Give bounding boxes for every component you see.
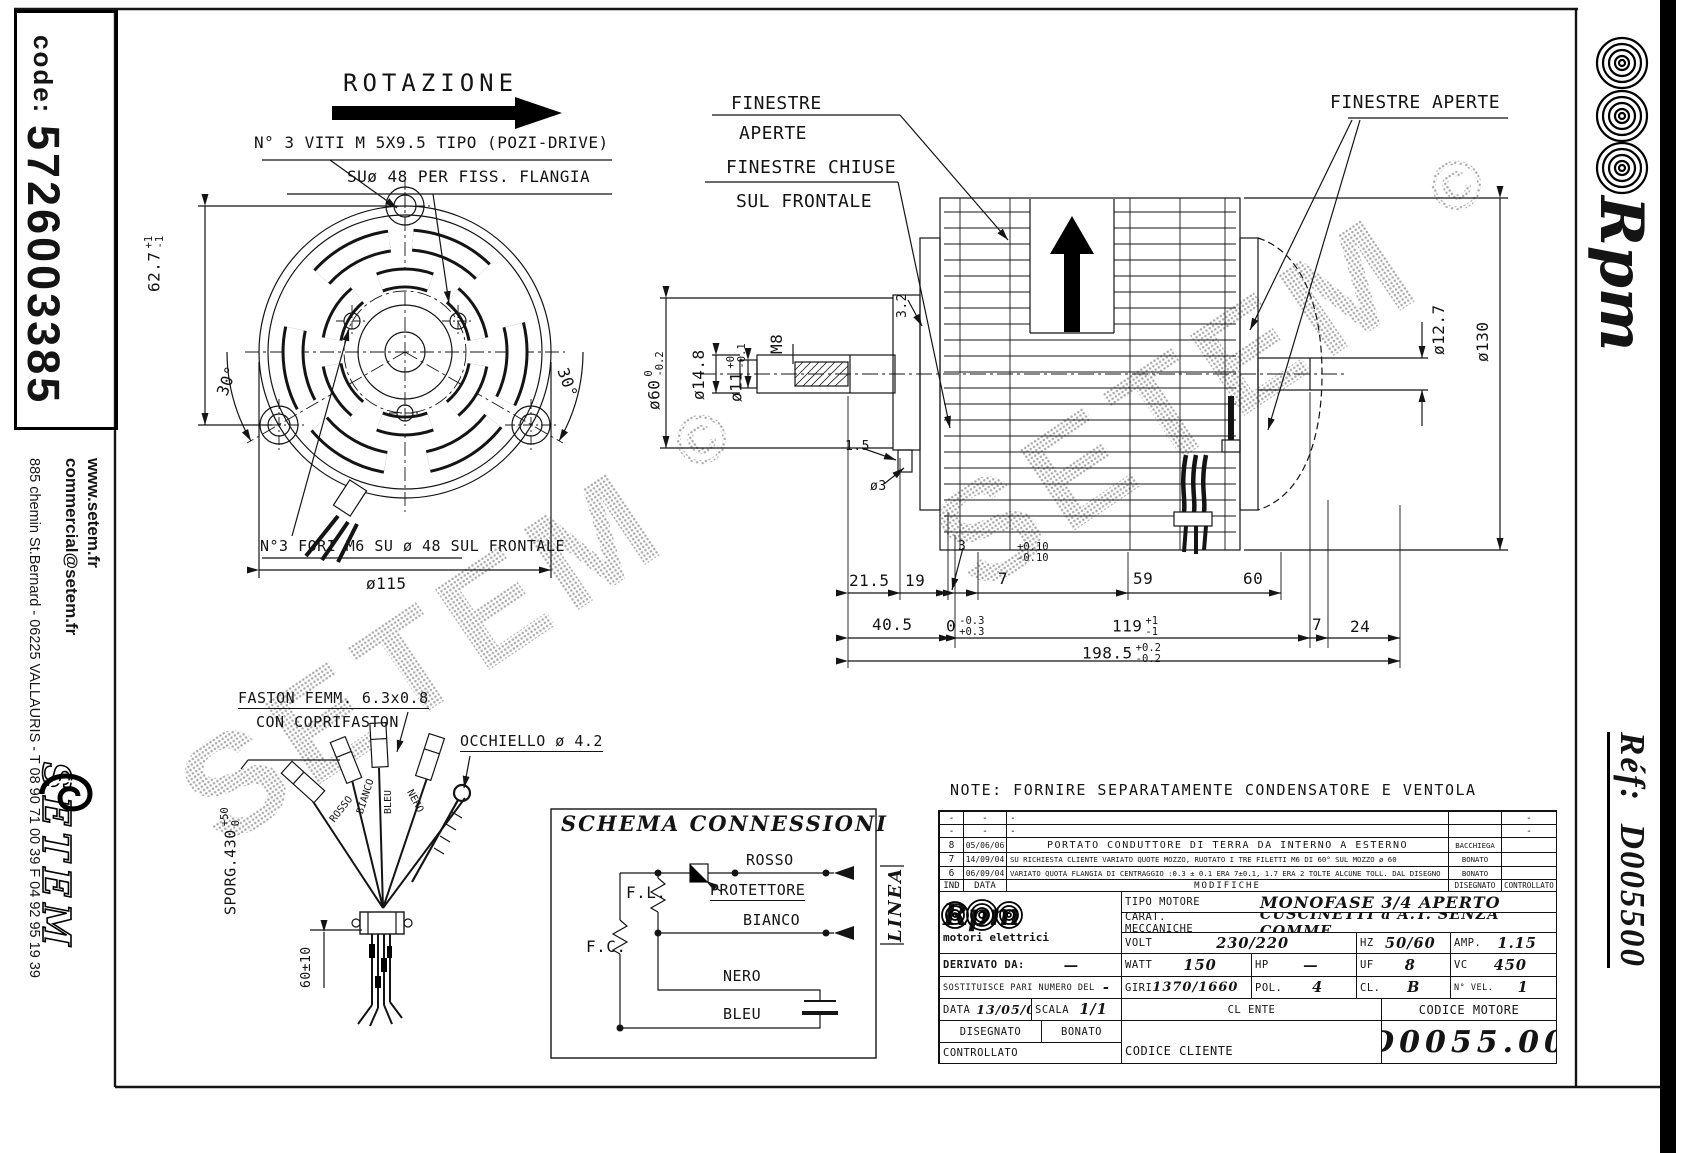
dim-19: 19 xyxy=(905,572,925,590)
rpm-logo-cell: Rpm motori elettrici xyxy=(939,891,1121,953)
rpm-coil-icon-large xyxy=(1594,36,1650,196)
dim-d130: ø130 xyxy=(1474,321,1492,362)
rev-date: - xyxy=(963,811,1006,824)
rev-date: 05/06/06 xyxy=(963,837,1006,852)
dim-d115: ø115 xyxy=(366,575,407,593)
dim-3: 3 xyxy=(958,540,966,554)
dim-d127: ø12.7 xyxy=(1430,304,1448,355)
rev-header-data: DATA xyxy=(963,879,1006,891)
schema-bleu: BLEU xyxy=(723,1006,761,1023)
rev-ind: 8 xyxy=(939,837,963,852)
field-codice-cliente: CODICE CLIENTE xyxy=(1121,1020,1381,1063)
field-codice-motore-label: CODICE MOTORE xyxy=(1381,998,1556,1020)
dim-24: 24 xyxy=(1350,618,1370,636)
finestre-aperte-label: FINESTRE xyxy=(731,94,822,114)
dim-62-7: 62.7+1-1 xyxy=(144,236,166,292)
rev-header-ind: IND xyxy=(939,879,963,891)
holes-note: N°3 FORI M6 SU ø 48 SUL FRONTALE xyxy=(260,538,565,555)
rev-desc: - xyxy=(1006,824,1448,837)
rev-date: 06/09/04 xyxy=(963,866,1006,879)
rev-by: BONATO xyxy=(1448,866,1501,879)
setem-logo: SETEM xyxy=(34,758,79,953)
rev-ind: - xyxy=(939,811,963,824)
field-amp: AMP.1.15 xyxy=(1450,932,1556,953)
rev-ind: 7 xyxy=(939,852,963,866)
field-codice-motore-value: D0055.00 xyxy=(1381,1020,1556,1063)
field-carat: CARAT. MECCANICHECUSCINETTI a A.T. SENZA… xyxy=(1121,912,1556,932)
occhiello-note: OCCHIELLO ø 4.2 xyxy=(460,733,603,752)
rev-desc: SU RICHIESTA CLIENTE VARIATO QUOTE MOZZO… xyxy=(1006,852,1448,866)
faston-note2: CON COPRIFASTON xyxy=(256,714,399,731)
dim-cable-length: 60±10 xyxy=(300,946,314,988)
finestre-aperte-right-label: FINESTRE APERTE xyxy=(1330,93,1500,113)
contact-info: www.setem.frcommercial@setem.fr xyxy=(60,458,104,758)
field-uf: UF8 xyxy=(1356,953,1450,976)
dim-119: 119+1-1 xyxy=(1112,616,1158,638)
field-controllato: CONTROLLATO xyxy=(939,1042,1121,1063)
field-hp: HP— xyxy=(1251,953,1356,976)
schema-fc: F.C. xyxy=(586,938,627,956)
rev-header-controllato: CONTROLLATO xyxy=(1501,879,1556,891)
field-sostituisce: SOSTITUISCE PARI NUMERO DEL- xyxy=(939,976,1121,998)
rev-desc: PORTATO CONDUTTORE DI TERRA DA INTERNO A… xyxy=(1006,837,1448,852)
dim-d148: ø14.8 xyxy=(690,349,708,400)
dim-m8: M8 xyxy=(768,334,786,354)
schema-nero: NERO xyxy=(723,968,761,985)
screw-note: N° 3 VITI M 5X9.5 TIPO (POZI-DRIVE) xyxy=(254,134,609,152)
rpm-coil-icon xyxy=(940,892,1024,938)
field-cl: CL.B xyxy=(1356,976,1450,998)
field-hz: HZ50/60 xyxy=(1356,932,1450,953)
field-scala: SCALA1/1 xyxy=(1031,998,1121,1020)
email: commercial@setem.fr xyxy=(62,458,81,635)
ref-number: Réf: D005500 xyxy=(1607,732,1652,968)
rev-date: 14/09/04 xyxy=(963,852,1006,866)
rev-desc: - xyxy=(1006,811,1448,824)
finestre-chiuse-label: FINESTRE CHIUSE xyxy=(726,158,896,178)
title-block: - - - - - - - - 8 05/06/06 PORTATO CONDU… xyxy=(938,810,1557,1064)
rev-by: BONATO xyxy=(1448,852,1501,866)
dim-7-tol: +0.10-0.10 xyxy=(1017,542,1049,564)
rev-by xyxy=(1448,811,1501,824)
field-giri: GIRI1370/1660 xyxy=(1121,976,1251,998)
main-note: NOTE: FORNIRE SEPARATAMENTE CONDENSATORE… xyxy=(950,782,1477,799)
sporg-note: SPORG.430+500 xyxy=(220,807,242,915)
dim-d60: ø600-0.2 xyxy=(644,351,666,410)
faston-note: FASTON FEMM. 6.3x0.8 xyxy=(238,690,429,709)
rev-desc: VARIATO QUOTA FLANGIA DI CENTRAGGIO :0.3… xyxy=(1006,866,1448,879)
field-cl-ente: CL ENTE xyxy=(1121,998,1381,1020)
field-disegnato: DISEGNATO xyxy=(939,1020,1041,1042)
schema-bianco: BIANCO xyxy=(743,912,800,929)
rev-date: - xyxy=(963,824,1006,837)
rev-by: BACCHIEGA xyxy=(1448,837,1501,852)
dim-21-5: 21.5 xyxy=(849,572,890,590)
schema-linea: LINEA xyxy=(886,867,906,942)
cable-bundle xyxy=(241,712,470,1026)
schema-rosso: ROSSO xyxy=(746,852,794,869)
field-pol: POL.4 xyxy=(1251,976,1356,998)
dim-40-5: 40.5 xyxy=(872,616,913,634)
dim-3-2: 3.2 xyxy=(896,293,910,318)
dim-60: 60 xyxy=(1243,570,1263,588)
rev-ctrl: - xyxy=(1501,824,1556,837)
dim-d3: ø3 xyxy=(870,480,887,494)
dim-7: 7 xyxy=(998,570,1008,588)
finestre-aperte-label2: APERTE xyxy=(739,124,807,144)
schema-protettore: PROTETTORE xyxy=(710,882,805,901)
website: www.setem.fr xyxy=(84,458,103,568)
rev-ctrl xyxy=(1501,866,1556,879)
rev-ind: - xyxy=(939,824,963,837)
rev-ctrl xyxy=(1501,837,1556,852)
field-nvel: N° VEL.1 xyxy=(1450,976,1556,998)
rev-ind: 6 xyxy=(939,866,963,879)
field-vc: VC450 xyxy=(1450,953,1556,976)
drawing-sheet: SETEM © SETEM © xyxy=(0,0,1683,1153)
finestre-chiuse-label2: SUL FRONTALE xyxy=(736,192,872,212)
dim-59: 59 xyxy=(1133,570,1153,588)
rev-header-modifiche: MODIFICHE xyxy=(1006,879,1448,891)
schema-title: SCHEMA CONNESSIONI xyxy=(561,812,888,835)
setem-swirl-icon xyxy=(34,758,98,822)
flange-note: SUø 48 PER FISS. FLANGIA xyxy=(347,168,590,186)
code-label: code: xyxy=(28,35,58,114)
dim-7b: 7 xyxy=(1312,616,1322,634)
schema-fl: F.L. xyxy=(626,884,667,902)
field-tipo-motore: TIPO MOTOREMONOFASE 3/4 APERTO xyxy=(1121,891,1556,912)
rpm-brand-script: Rpm xyxy=(1586,196,1656,351)
code-box: code:5726003385 xyxy=(14,10,118,430)
rotation-arrow xyxy=(332,97,562,129)
rev-header-disegnato: DISEGNATO xyxy=(1448,879,1501,891)
field-data: DATA13/05/04 xyxy=(939,998,1031,1020)
code-value: 5726003385 xyxy=(18,125,69,405)
field-disegnato-value: BONATO xyxy=(1041,1020,1121,1042)
field-watt: WATT150 xyxy=(1121,953,1251,976)
dim-d11: ø11+0-0.1 xyxy=(726,343,748,402)
field-volt: VOLT230/220 xyxy=(1121,932,1356,953)
dim-198-5: 198.5+0.2-0.2 xyxy=(1082,643,1161,665)
dim-1-5: 1.5 xyxy=(845,440,870,454)
rev-ctrl xyxy=(1501,852,1556,866)
ring-terminal xyxy=(454,785,470,801)
field-derivato: DERIVATO DA:— xyxy=(939,953,1121,976)
rev-by xyxy=(1448,824,1501,837)
dim-0: 0-0.3+0.3 xyxy=(946,616,984,638)
rev-ctrl: - xyxy=(1501,811,1556,824)
rotation-label: ROTAZIONE xyxy=(343,70,518,96)
wire-label-bleu: BLEU xyxy=(383,790,394,814)
